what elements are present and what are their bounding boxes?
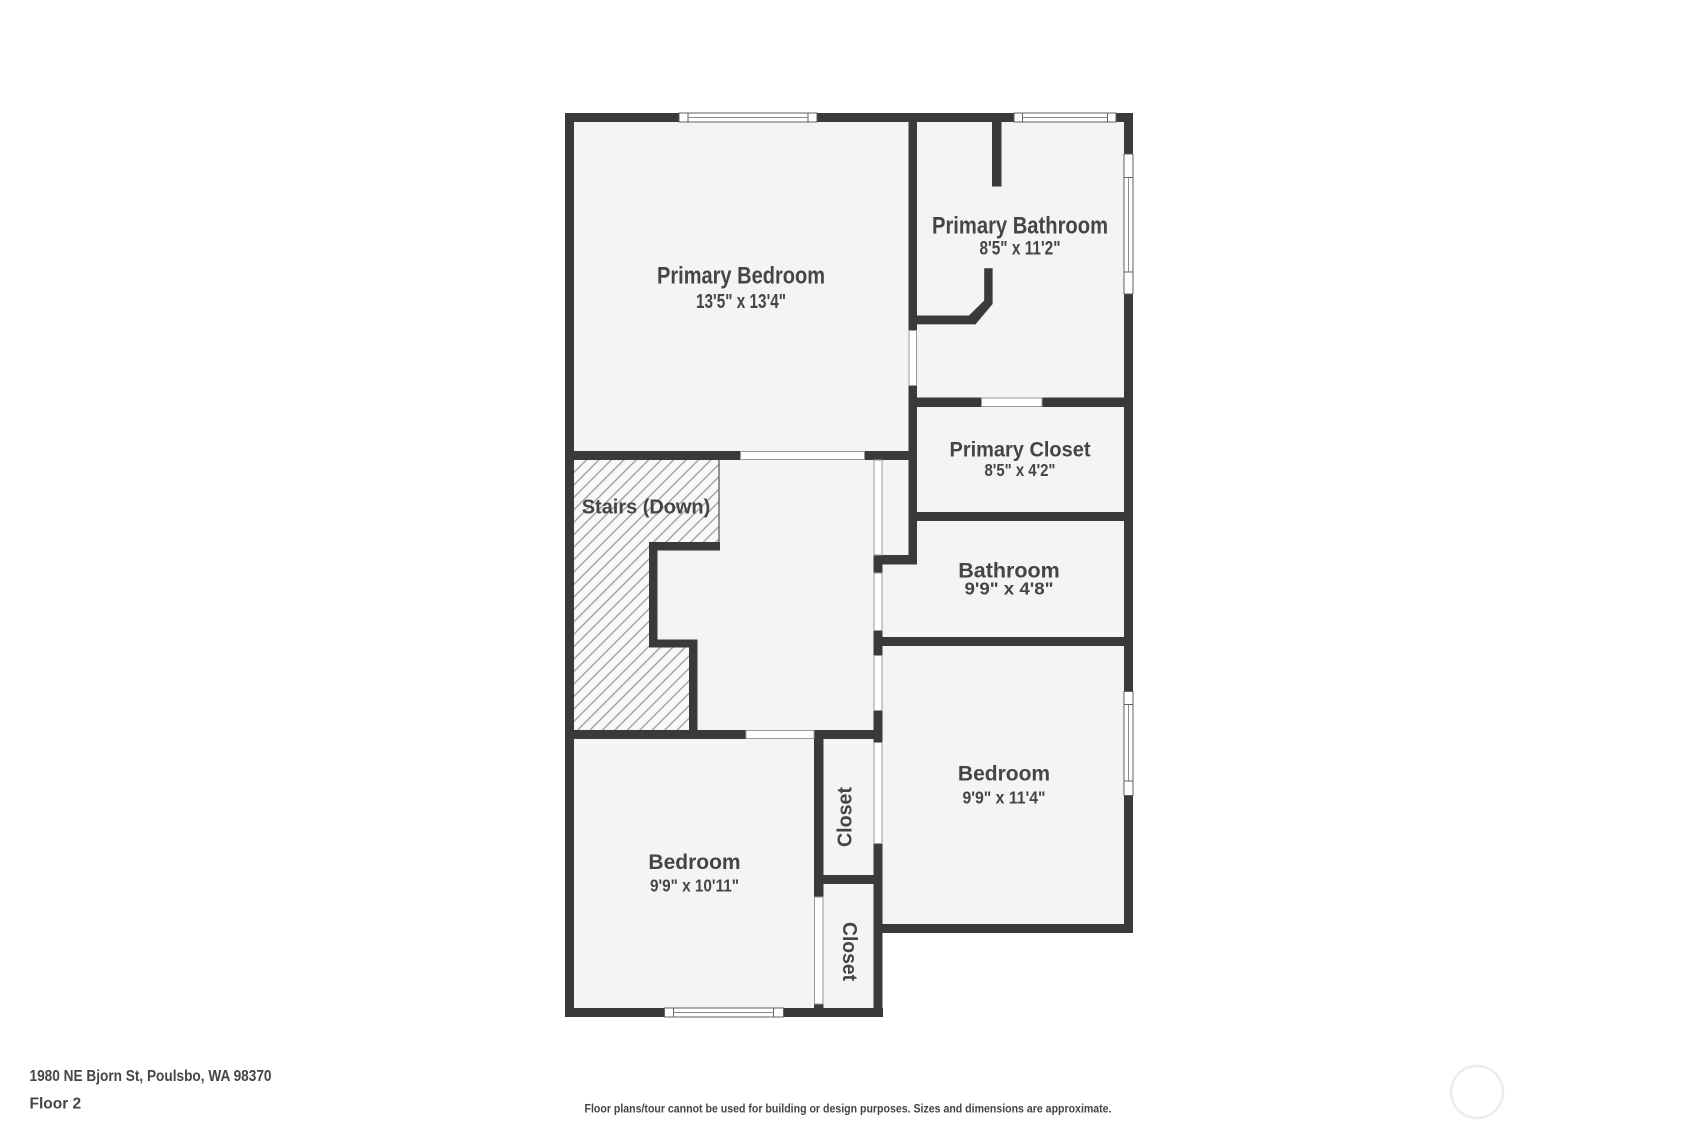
svg-text:9'9" x 10'11": 9'9" x 10'11" bbox=[650, 876, 739, 896]
svg-text:Stairs (Down): Stairs (Down) bbox=[582, 496, 711, 519]
svg-text:Primary Closet: Primary Closet bbox=[950, 438, 1091, 462]
svg-text:Closet: Closet bbox=[838, 922, 860, 981]
svg-text:Floor 2: Floor 2 bbox=[30, 1096, 82, 1113]
svg-text:Primary Bathroom: Primary Bathroom bbox=[932, 213, 1108, 240]
svg-text:Floor plans/tour cannot be use: Floor plans/tour cannot be used for buil… bbox=[585, 1102, 1112, 1116]
svg-text:8'5" x 11'2": 8'5" x 11'2" bbox=[980, 238, 1061, 260]
svg-text:8'5" x 4'2": 8'5" x 4'2" bbox=[985, 460, 1056, 480]
svg-text:9'9" x 11'4": 9'9" x 11'4" bbox=[963, 788, 1046, 808]
svg-text:1980 NE Bjorn St, Poulsbo, WA: 1980 NE Bjorn St, Poulsbo, WA 98370 bbox=[30, 1068, 272, 1085]
svg-text:Bedroom: Bedroom bbox=[958, 763, 1050, 786]
svg-text:Primary Bedroom: Primary Bedroom bbox=[657, 263, 825, 290]
svg-text:Bedroom: Bedroom bbox=[648, 851, 740, 874]
svg-text:13'5" x 13'4": 13'5" x 13'4" bbox=[696, 291, 786, 313]
svg-text:9'9" x 4'8": 9'9" x 4'8" bbox=[965, 579, 1054, 599]
svg-text:Closet: Closet bbox=[835, 787, 857, 847]
